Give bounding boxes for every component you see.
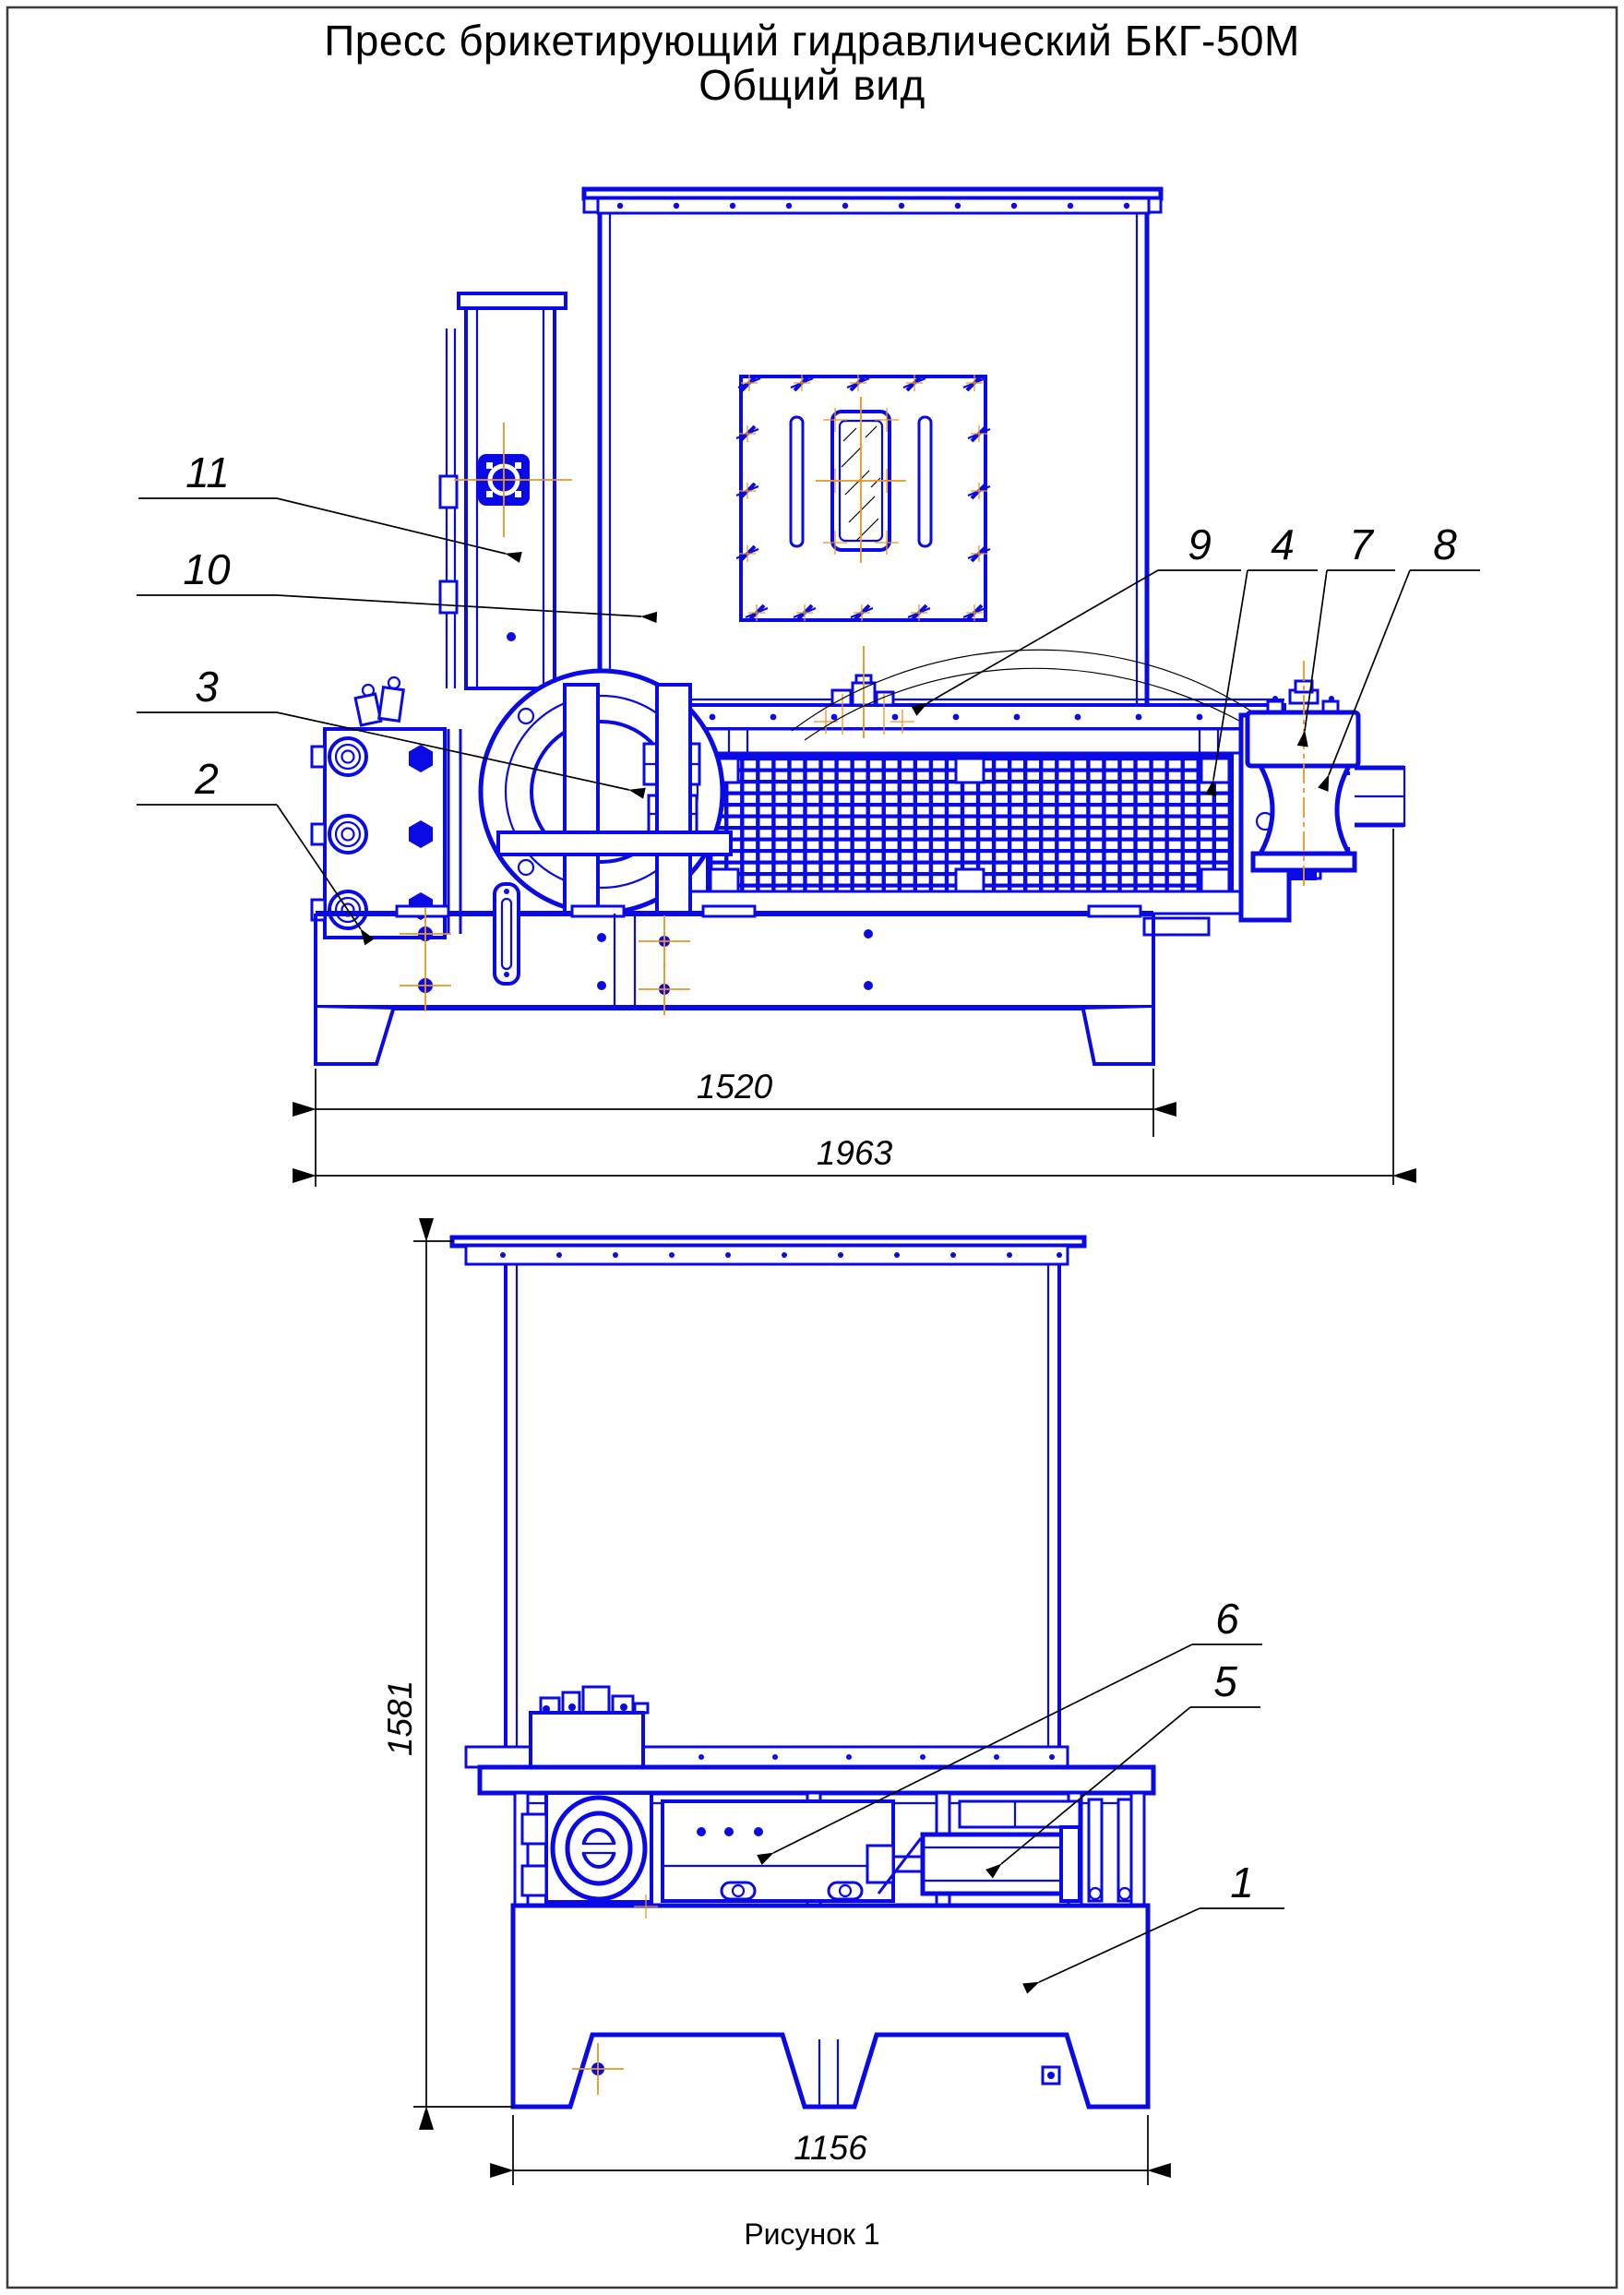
svg-text:9: 9 — [1188, 520, 1212, 568]
figure-caption: Рисунок 1 — [744, 2217, 879, 2251]
frame-leg-right — [657, 685, 690, 914]
table-plate — [480, 1767, 1153, 1793]
relief-valve — [355, 677, 403, 725]
tank-plugs — [400, 908, 873, 1015]
title-line-1: Пресс брикетирующий гидравлический БКГ-5… — [324, 17, 1300, 65]
outlet-valve — [1248, 661, 1404, 891]
dim-value-1520: 1520 — [697, 1068, 773, 1106]
drawing-sheet: Пресс брикетирующий гидравлический БКГ-5… — [0, 0, 1624, 2295]
pump-unit-side — [531, 1687, 648, 1767]
valve-block-side — [522, 1793, 651, 1902]
hopper-side — [452, 1237, 1084, 1767]
inspection-panel — [736, 375, 990, 621]
svg-text:3: 3 — [195, 663, 219, 711]
svg-text:10: 10 — [183, 545, 231, 593]
hydraulic-cylinder-side — [867, 1799, 1131, 1901]
dimension-1581: 1581 — [381, 1241, 513, 2107]
frame-leg-left — [565, 685, 598, 914]
svg-text:5: 5 — [1213, 1657, 1237, 1705]
dimension-1156: 1156 — [513, 2115, 1148, 2185]
hydraulic-cylinder-column — [440, 293, 572, 688]
svg-text:11: 11 — [185, 448, 230, 496]
svg-text:1: 1 — [1230, 1859, 1254, 1907]
base-frame-front — [316, 884, 1153, 1064]
foot-left — [316, 1008, 393, 1064]
dim-value-1581: 1581 — [381, 1680, 419, 1756]
svg-text:7: 7 — [1349, 520, 1374, 568]
base-frame-side — [513, 1895, 1148, 2107]
svg-text:6: 6 — [1215, 1595, 1239, 1643]
callout-10: 10 — [137, 545, 641, 616]
svg-text:2: 2 — [194, 755, 219, 803]
chamber-grille — [687, 757, 1284, 914]
dimension-1520: 1520 — [316, 1068, 1153, 1187]
svg-text:8: 8 — [1433, 520, 1457, 568]
dim-value-1963: 1963 — [817, 1134, 893, 1172]
front-view — [312, 189, 1404, 1064]
title-line-2: Общий вид — [699, 61, 925, 109]
side-view — [452, 1237, 1153, 2107]
drawing-title: Пресс брикетирующий гидравлический БКГ-5… — [324, 17, 1300, 109]
technical-drawing: Пресс брикетирующий гидравлический БКГ-5… — [0, 0, 1624, 2295]
dim-value-1156: 1156 — [794, 2129, 867, 2167]
valve-manifold — [312, 677, 460, 938]
oil-level-gauge — [495, 884, 519, 984]
svg-text:4: 4 — [1271, 520, 1295, 568]
foot-right — [1083, 1008, 1153, 1064]
